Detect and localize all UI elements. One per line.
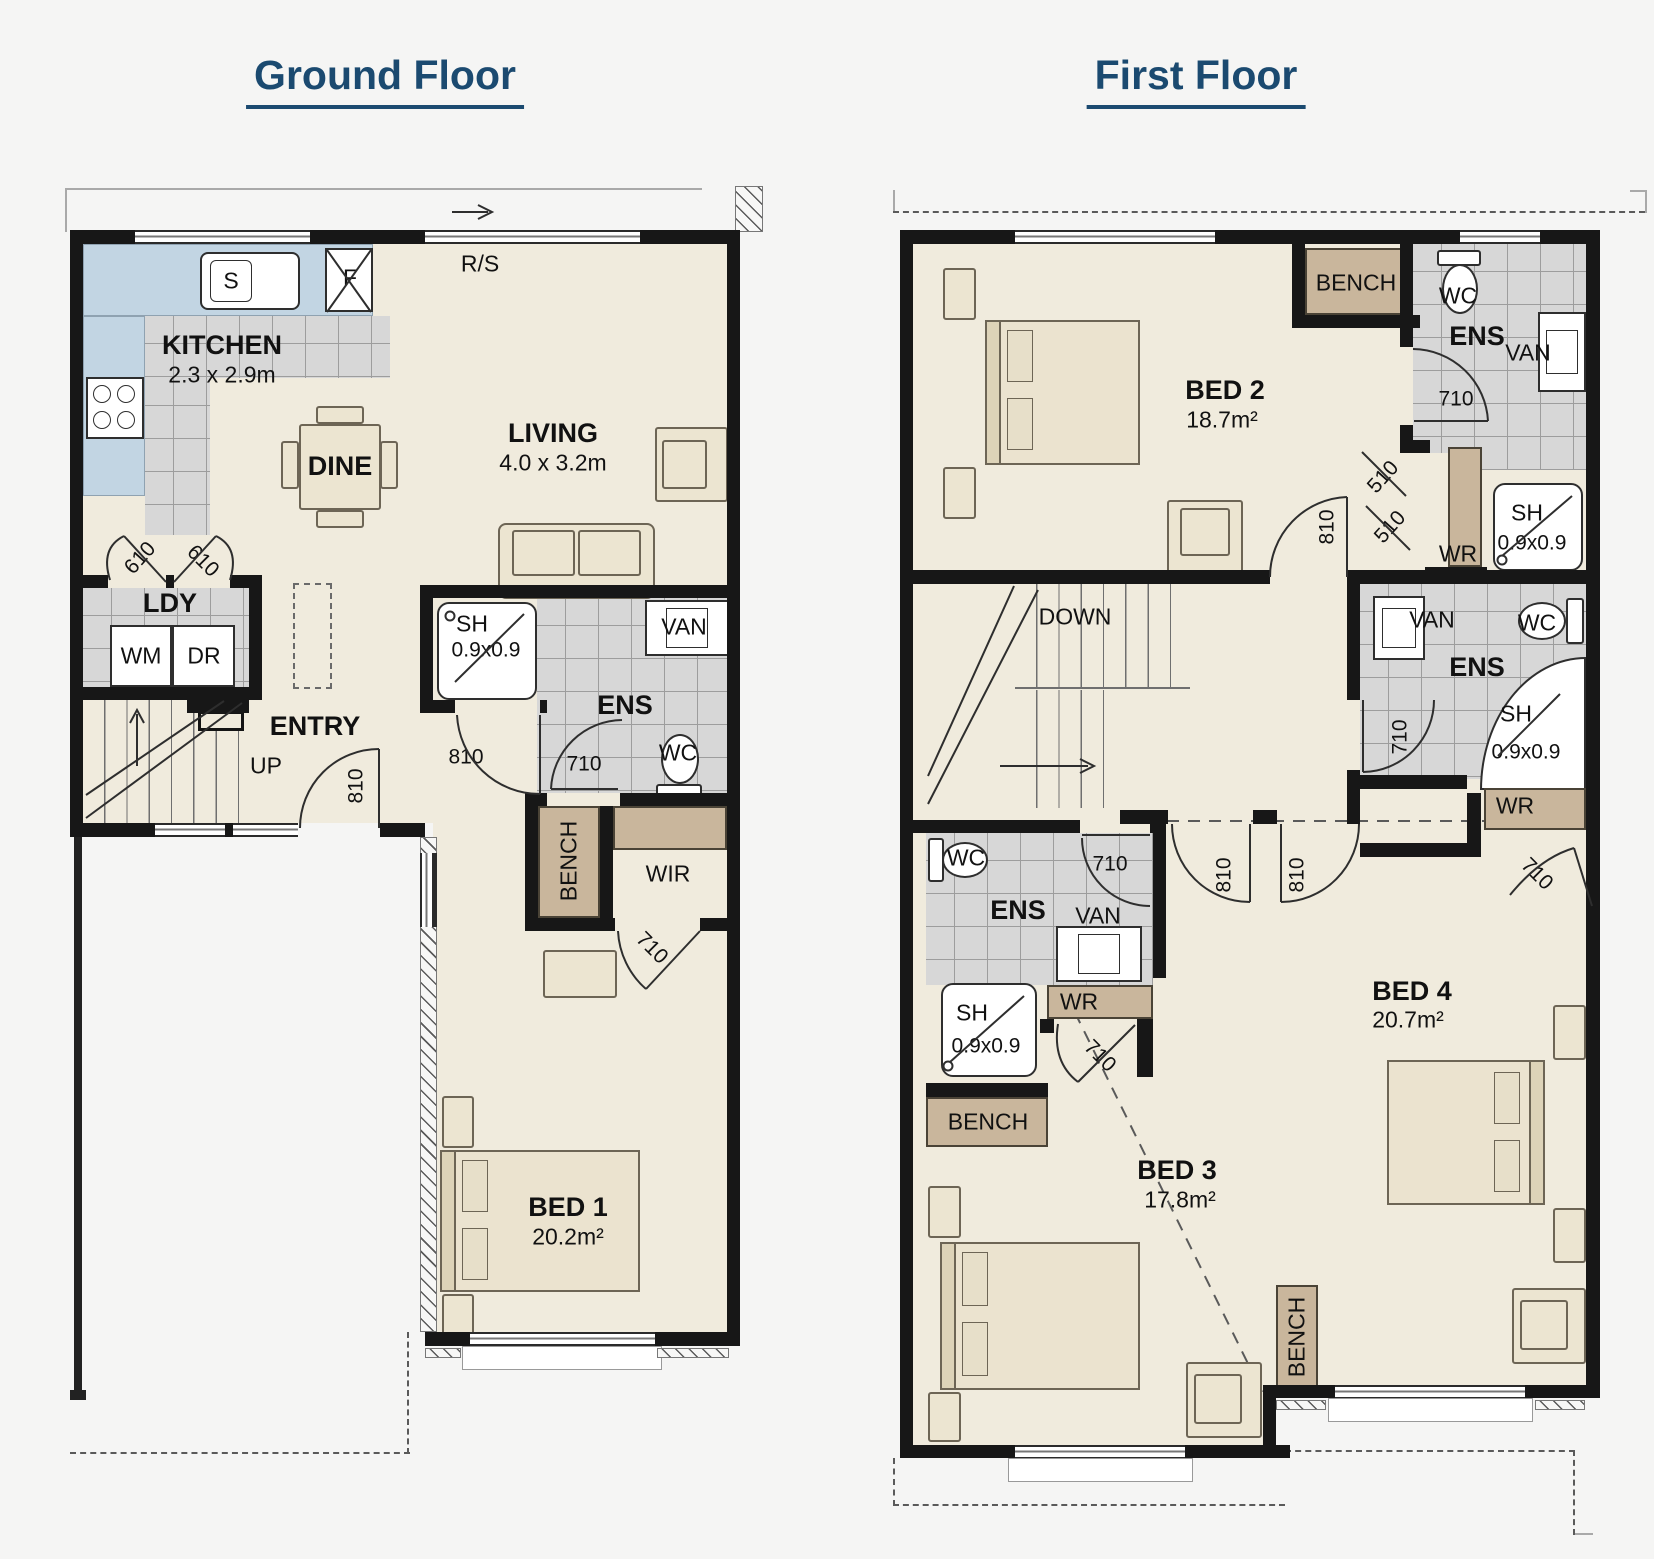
ff-door-710-label: 710	[1092, 852, 1127, 875]
ff-bed4-armchair-seat	[1520, 1300, 1568, 1350]
wall	[1586, 230, 1600, 1398]
gf-hatch-strip	[657, 1348, 729, 1358]
ff-bed4-pillow	[1494, 1072, 1520, 1124]
wall	[913, 570, 1270, 584]
wall	[600, 806, 613, 918]
gf-boundary-dashed-v	[407, 1332, 409, 1454]
gf-washer-label: WM	[121, 643, 162, 668]
ff-roof-dashed-top	[893, 211, 1645, 213]
ff-bed3-armchair-seat	[1194, 1374, 1242, 1424]
gf-courtyard-wall	[74, 837, 82, 1397]
wall	[1137, 1019, 1153, 1077]
wall	[1360, 775, 1467, 789]
ff-bed4-label: BED 4	[1372, 977, 1452, 1007]
gf-burner	[117, 411, 135, 429]
ff-door-810-label: 810	[1285, 857, 1308, 892]
ff-bench-left-label: BENCH	[948, 1109, 1029, 1134]
gf-living-size-label: 4.0 x 3.2m	[499, 450, 606, 475]
ff-door-710-label: 710	[1438, 387, 1473, 410]
gf-burner	[93, 385, 111, 403]
ff-toilet-label: WC	[1439, 283, 1477, 308]
ff-wr-left-label: WR	[1060, 989, 1098, 1014]
wall	[166, 575, 174, 588]
gf-up-label: UP	[250, 753, 282, 778]
window	[1335, 1385, 1525, 1398]
gf-bed1-label: BED 1	[528, 1193, 608, 1223]
gf-door-810-label: 810	[344, 768, 367, 803]
ff-vanity-label: VAN	[1075, 903, 1121, 928]
ff-bed3-headboard	[940, 1242, 956, 1390]
gf-entry-label: ENTRY	[270, 712, 361, 742]
wall	[540, 700, 547, 713]
wall	[1400, 244, 1413, 347]
gf-bench-label: BENCH	[556, 821, 581, 902]
gf-sofa-cushion	[578, 530, 641, 576]
ff-bed2-armchair-seat	[1180, 508, 1230, 556]
ff-shower-left	[941, 983, 1037, 1077]
window	[470, 1332, 655, 1346]
ff-vanity-label: VAN	[1505, 340, 1551, 365]
wall	[70, 230, 83, 837]
ff-toilet-tank	[1566, 598, 1584, 644]
ff-bed3-side-table	[928, 1186, 961, 1238]
gf-door-810-label: 810	[448, 745, 483, 768]
ff-roof-corner	[1645, 190, 1647, 213]
wall	[913, 820, 1080, 833]
gf-boundary-dashed	[70, 1452, 410, 1454]
gf-door-710-label: 710	[566, 752, 601, 775]
ff-hatch-strip	[1276, 1400, 1326, 1410]
wall	[1215, 230, 1460, 244]
gf-hall-armchair	[543, 950, 617, 998]
wall	[525, 793, 538, 931]
gf-sink-label: S	[223, 268, 238, 293]
gf-bed1-headboard	[440, 1150, 456, 1292]
window-sill	[1328, 1398, 1533, 1422]
window	[1460, 230, 1540, 244]
ff-shower-label: SH	[956, 1000, 988, 1025]
wall	[427, 700, 455, 713]
ff-ensuite-label: ENS	[990, 896, 1046, 926]
gf-bed1-pillow	[462, 1160, 488, 1212]
ff-bed2-area-label: 18.7m²	[1186, 407, 1258, 432]
wall	[380, 823, 425, 837]
gf-bed1-pillow	[462, 1228, 488, 1280]
gf-storage-dashed-outline	[293, 583, 332, 689]
wall	[700, 918, 727, 931]
ff-shower-top	[1493, 483, 1583, 571]
ground-floor-title: Ground Floor	[246, 52, 524, 109]
ff-door-810-label: 810	[1315, 509, 1338, 544]
ff-vanity-basin	[1546, 330, 1578, 374]
gf-kitchen-label: KITCHEN	[162, 331, 282, 361]
wall	[1360, 843, 1467, 857]
wall	[620, 793, 727, 806]
ff-bed3-pillow	[962, 1252, 988, 1306]
ff-stair-landing-line	[1015, 687, 1190, 689]
wall	[525, 918, 615, 931]
gf-wir-shelf	[613, 806, 727, 850]
ff-door-810-label: 810	[1212, 857, 1235, 892]
gf-toilet-label: WC	[659, 740, 697, 765]
wall	[1253, 810, 1277, 824]
ff-bed3-area-label: 17.8m²	[1144, 1187, 1216, 1212]
ff-bed3-pillow	[962, 1322, 988, 1376]
gf-vanity-label: VAN	[661, 614, 707, 639]
ff-ensuite-label: ENS	[1449, 322, 1505, 352]
wall	[926, 1083, 1048, 1097]
window-sill	[462, 1346, 662, 1370]
wall	[70, 687, 262, 700]
gf-hatch-strip	[425, 1348, 461, 1358]
gf-stair-landing-notch	[198, 711, 244, 731]
wall	[1400, 440, 1430, 453]
wall	[1525, 1385, 1600, 1398]
ff-bed2-label: BED 2	[1185, 376, 1265, 406]
window	[1015, 1445, 1185, 1458]
ff-roof-dashed-bottom	[1285, 1450, 1575, 1452]
ff-vanity-label: VAN	[1409, 607, 1455, 632]
gf-eave-tick	[65, 188, 67, 232]
gf-armchair-seat	[662, 440, 707, 489]
wall	[655, 1332, 727, 1346]
ff-bed4-headboard	[1529, 1060, 1545, 1205]
ff-roof-tick	[893, 190, 895, 212]
ff-roof-dashed	[893, 1458, 895, 1506]
wall	[187, 700, 249, 713]
gf-courtyard-window	[420, 853, 437, 927]
ff-stairs-upper	[1015, 584, 1190, 688]
ff-bed4-bed	[1387, 1060, 1545, 1205]
wall	[249, 575, 262, 700]
gf-roof-slope-label: R/S	[461, 251, 499, 276]
ff-roof-dashed-v	[1573, 1450, 1575, 1535]
wall	[1040, 1019, 1054, 1033]
wall	[225, 823, 233, 837]
gf-living-label: LIVING	[508, 419, 598, 449]
ff-roof-corner	[1573, 1533, 1593, 1535]
wall	[420, 598, 433, 713]
ff-shower-size-label: 0.9x0.9	[952, 1034, 1021, 1057]
ff-bed2-headboard	[985, 320, 1001, 465]
ff-bench-top-label: BENCH	[1316, 270, 1397, 295]
wall	[727, 230, 740, 1346]
wall	[900, 1445, 1015, 1458]
ff-roof-dashed-bottom	[893, 1504, 1285, 1506]
wall	[70, 575, 108, 588]
ff-bed4-pillow	[1494, 1140, 1520, 1192]
gf-fridge-label: F	[343, 265, 357, 290]
wall	[70, 823, 155, 837]
wall	[1153, 833, 1166, 978]
wall	[900, 230, 913, 1458]
ff-hatch-strip	[1535, 1400, 1585, 1410]
gf-dine-chair	[316, 406, 364, 424]
gf-dine-chair	[380, 441, 398, 489]
gf-sofa-cushion	[512, 530, 575, 576]
ff-bed4-side-table	[1553, 1005, 1586, 1060]
ff-toilet-label: WC	[947, 845, 985, 870]
wall	[1150, 820, 1166, 833]
gf-cooktop	[86, 377, 144, 439]
ff-bed2-pillow	[1007, 330, 1033, 382]
window	[155, 823, 225, 837]
wall	[1467, 793, 1481, 857]
gf-kitchen-bench-tiles-v	[145, 378, 210, 535]
gf-bed1-area-label: 20.2m²	[532, 1224, 604, 1249]
gf-kitchen-size-label: 2.3 x 2.9m	[168, 362, 275, 387]
ff-bed4-area-label: 20.7m²	[1372, 1007, 1444, 1032]
ff-wr-top-label: WR	[1439, 541, 1477, 566]
ff-shower-label: SH	[1511, 500, 1543, 525]
gf-wir-label: WIR	[646, 861, 691, 886]
gf-eave-hatch	[735, 186, 763, 232]
wall	[1263, 1385, 1276, 1458]
wall	[900, 230, 1015, 244]
ff-stairs-lower	[1015, 690, 1117, 808]
window	[233, 823, 298, 837]
ff-bench-bed4-label: BENCH	[1284, 1297, 1309, 1378]
window	[135, 230, 310, 244]
ff-bed4-side-table	[1553, 1208, 1586, 1263]
ff-bed3-label: BED 3	[1137, 1156, 1217, 1186]
gf-laundry-label: LDY	[143, 589, 197, 619]
wall	[420, 585, 740, 598]
ff-shower-size-label: 0.9x0.9	[1492, 740, 1561, 763]
ff-vanity-basin	[1078, 934, 1120, 974]
window-sill	[1008, 1458, 1193, 1482]
ff-bed2-pillow	[1007, 398, 1033, 450]
gf-dine-chair	[281, 441, 299, 489]
window	[1015, 230, 1215, 244]
ff-bed2-side-table	[943, 268, 976, 320]
gf-burner	[93, 411, 111, 429]
gf-dine-label: DINE	[308, 452, 373, 482]
window	[425, 230, 640, 244]
ff-shower-size-label: 0.9x0.9	[1498, 531, 1567, 554]
wall	[1425, 567, 1487, 580]
ff-ensuite-label: ENS	[1449, 653, 1505, 683]
gf-dine-chair	[316, 510, 364, 528]
wall	[1352, 810, 1360, 824]
ff-toilet-label: WC	[1518, 610, 1556, 635]
ff-bed3-side-table	[928, 1392, 961, 1442]
gf-dryer-label: DR	[187, 643, 220, 668]
gf-burner	[117, 385, 135, 403]
gf-shower-label: SH	[456, 611, 488, 636]
ff-shower-label: SH	[1500, 701, 1532, 726]
gf-ensuite-label: ENS	[597, 691, 653, 721]
ff-wr-mid-label: WR	[1496, 793, 1534, 818]
wall	[1347, 584, 1360, 700]
gf-bed1-side-table	[442, 1096, 474, 1148]
wall	[425, 1332, 470, 1346]
gf-courtyard-wall-cap	[70, 1390, 86, 1400]
ff-bed2-side-table	[943, 467, 976, 519]
floorplan-canvas: Ground Floor First Floor	[0, 0, 1654, 1559]
gf-eave-line	[65, 188, 702, 190]
gf-shower-size-label: 0.9x0.9	[452, 638, 521, 661]
ff-down-label: DOWN	[1039, 604, 1112, 629]
ff-door-710-label: 710	[1388, 719, 1411, 754]
first-floor-title: First Floor	[1087, 52, 1306, 109]
